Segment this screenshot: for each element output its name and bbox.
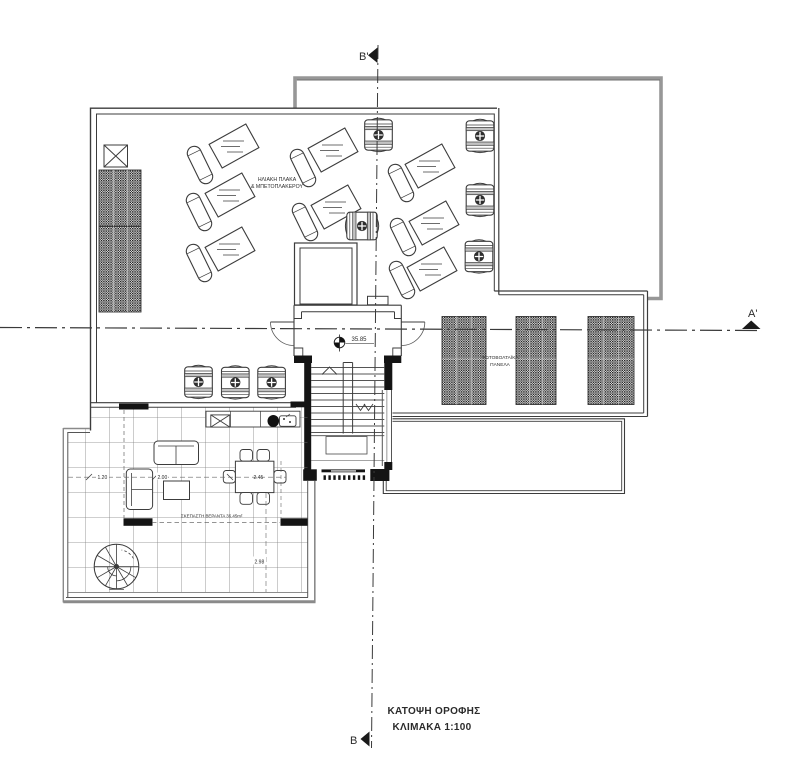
- svg-text:ΣΚΕΠΑΣΤΗ ΒΕΡΑΝΤΑ 36.45m²: ΣΚΕΠΑΣΤΗ ΒΕΡΑΝΤΑ 36.45m²: [181, 514, 243, 519]
- svg-text:ΠΑΝΕΛΑ: ΠΑΝΕΛΑ: [490, 362, 511, 368]
- svg-text:& ΜΠΕΤΟΠΛΑΚΕΡΟΥ: & ΜΠΕΤΟΠΛΑΚΕΡΟΥ: [251, 184, 303, 190]
- svg-text:ΚΛΙΜΑΚΑ 1:100: ΚΛΙΜΑΚΑ 1:100: [393, 722, 472, 733]
- svg-text:ΗΛΙΑΚΗ ΠΛΑΚΑ: ΗΛΙΑΚΗ ΠΛΑΚΑ: [258, 177, 297, 183]
- svg-text:ΚΑΤΟΨΗ ΟΡΟΦΗΣ: ΚΑΤΟΨΗ ΟΡΟΦΗΣ: [388, 706, 481, 717]
- svg-text:B: B: [350, 735, 357, 747]
- svg-text:B': B': [359, 51, 368, 63]
- svg-text:1.20: 1.20: [98, 475, 108, 481]
- svg-text:2.45: 2.45: [254, 475, 264, 481]
- svg-text:35.85: 35.85: [352, 337, 368, 343]
- svg-text:A': A': [748, 308, 757, 320]
- svg-text:2.98: 2.98: [255, 560, 265, 566]
- svg-text:ΦΩΤΟΒΟΛΤΑΪΚΑ: ΦΩΤΟΒΟΛΤΑΪΚΑ: [481, 354, 519, 361]
- svg-text:2.00: 2.00: [158, 475, 168, 481]
